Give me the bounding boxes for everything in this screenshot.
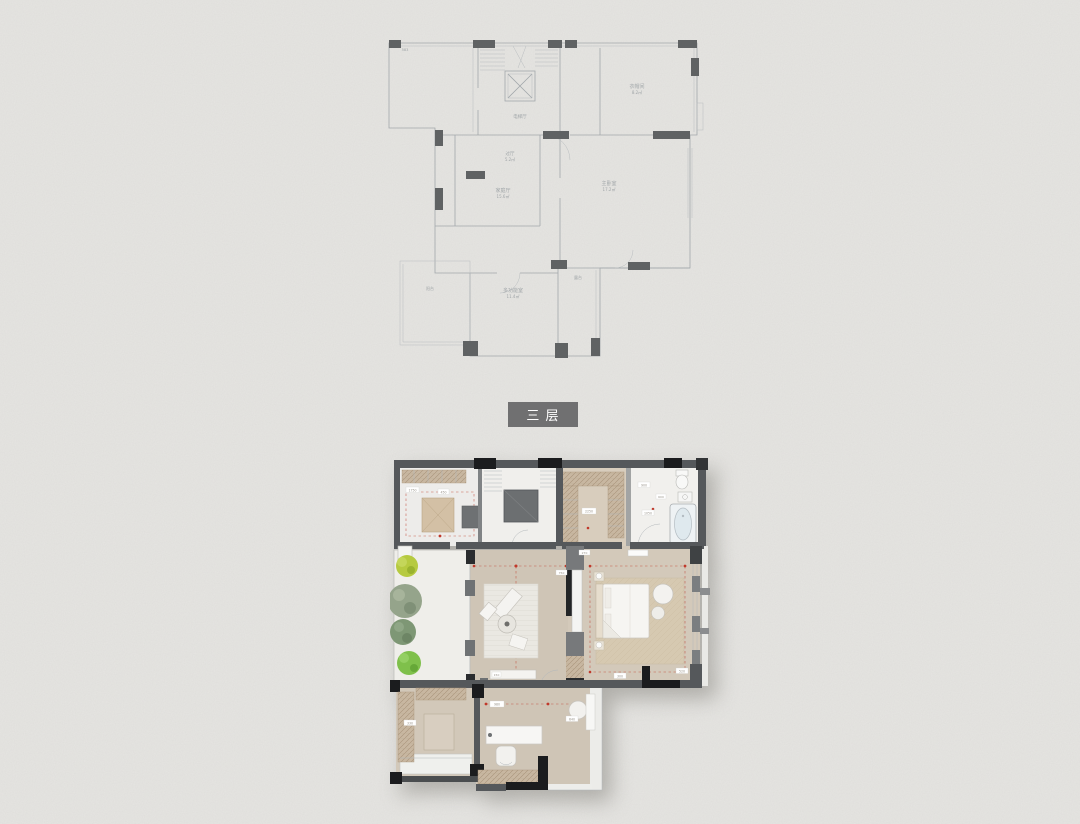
svg-text:520: 520: [679, 669, 685, 673]
room-label-multi: 多功能室: [503, 287, 523, 294]
shelf: [586, 694, 595, 730]
room-label-closet: 衣帽间: [629, 83, 644, 90]
rendered-floor-plan-svg: 1750 450 2250 900 1050 600 150 750 300 5…: [390, 458, 714, 800]
svg-text:640: 640: [569, 717, 575, 721]
terrace-outlines: [400, 261, 470, 345]
round-chair: [653, 584, 673, 604]
room-label-balcony: 阳台: [426, 285, 434, 291]
tree-bright: [396, 555, 418, 577]
line-floor-plan: 583 衣帽间 8.2㎡ 电梯厅 过厅 5.2㎡ 家庭厅 15.6㎡ 主卧室 1…: [385, 38, 707, 368]
svg-text:1750: 1750: [408, 488, 416, 492]
room-label-master: 主卧室: [601, 180, 616, 187]
tv-console: [628, 550, 648, 556]
desk-chair: [496, 746, 516, 766]
door-arcs: [500, 135, 633, 293]
svg-text:300: 300: [617, 674, 623, 678]
tree-olive: [390, 619, 416, 645]
rendered-floor-plan: 1750 450 2250 900 1050 600 150 750 300 5…: [390, 458, 714, 800]
wall-fills: [389, 40, 699, 358]
svg-text:270: 270: [582, 551, 588, 555]
outer-wall-inner-line: [392, 46, 694, 132]
stair-elevator-core: [480, 46, 558, 101]
line-floor-plan-svg: 583 衣帽间 8.2㎡ 电梯厅 过厅 5.2㎡ 家庭厅 15.6㎡ 主卧室 1…: [385, 38, 707, 368]
room-label-deck: 露台: [574, 274, 582, 280]
floor-label-text: 三 层: [526, 405, 559, 424]
bath-partition: [626, 468, 631, 546]
svg-text:1050: 1050: [644, 511, 652, 515]
dark-dresser: [462, 506, 479, 528]
right-notch: [697, 103, 703, 130]
wardrobe-cabinets: [402, 470, 466, 483]
footstool: [652, 607, 665, 620]
room-label-family: 家庭厅: [495, 187, 510, 194]
svg-text:2250: 2250: [585, 510, 593, 514]
room-label-hall: 过厅: [506, 150, 515, 157]
room-label-elevator-hall: 电梯厅: [513, 113, 527, 120]
svg-text:11.4㎡: 11.4㎡: [507, 293, 520, 299]
headboard: [596, 584, 603, 638]
room-labels: 583 衣帽间 8.2㎡ 电梯厅 过厅 5.2㎡ 家庭厅 15.6㎡ 主卧室 1…: [402, 48, 645, 299]
svg-text:17.2㎡: 17.2㎡: [603, 186, 616, 192]
svg-text:15.6㎡: 15.6㎡: [497, 193, 510, 199]
small-rug: [424, 714, 454, 750]
toilet: [676, 475, 688, 489]
svg-text:980: 980: [494, 703, 500, 707]
svg-text:600: 600: [658, 495, 664, 499]
floor-label-badge: 三 层: [508, 402, 578, 427]
svg-text:8.2㎡: 8.2㎡: [632, 89, 642, 95]
desk: [486, 726, 542, 744]
svg-text:330: 330: [407, 721, 413, 725]
tree-green: [397, 651, 421, 675]
sink: [678, 492, 692, 502]
canvas: 583 衣帽间 8.2㎡ 电梯厅 过厅 5.2㎡ 家庭厅 15.6㎡ 主卧室 1…: [0, 0, 1080, 824]
svg-text:750: 750: [559, 571, 565, 575]
svg-text:5.2㎡: 5.2㎡: [505, 156, 515, 162]
interior-walls: [435, 43, 692, 356]
svg-text:900: 900: [641, 483, 647, 487]
svg-text:150: 150: [494, 673, 500, 677]
svg-text:450: 450: [440, 490, 446, 494]
dim-label: 583: [402, 48, 409, 52]
